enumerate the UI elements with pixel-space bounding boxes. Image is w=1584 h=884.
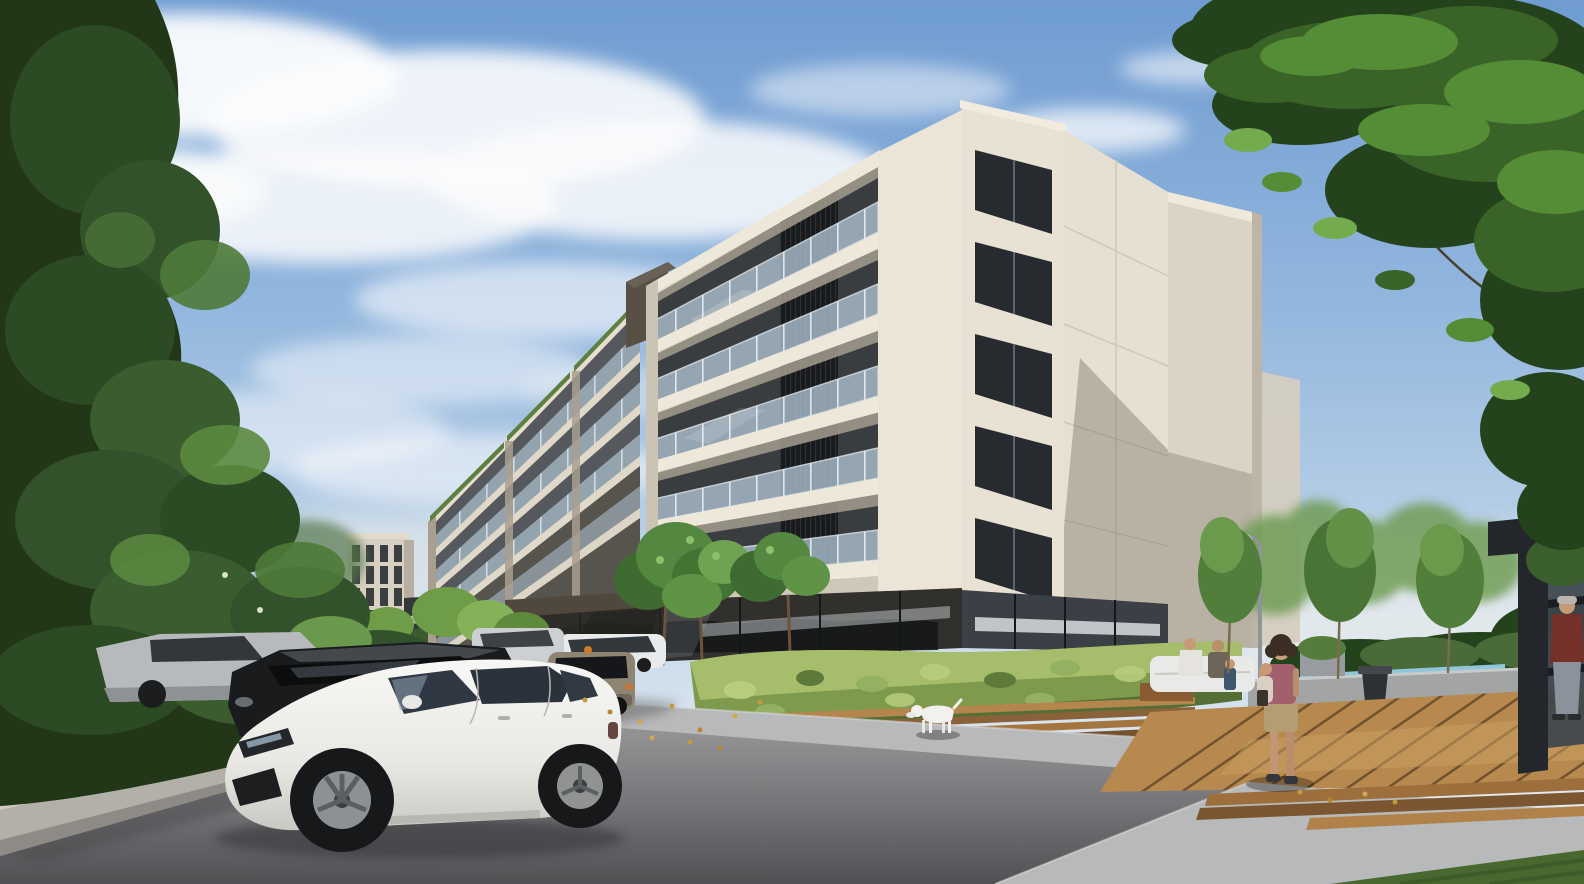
- woman-hair-curl: [1283, 643, 1297, 657]
- sedan-glass: [150, 636, 264, 662]
- hedge-flower: [222, 572, 228, 578]
- man-shoe: [1568, 714, 1581, 720]
- leaf-cluster-light: [1260, 36, 1364, 76]
- woman-shorts: [1264, 700, 1298, 732]
- side-mirror: [402, 695, 422, 709]
- hedge-flower: [257, 607, 263, 613]
- rear-taillight: [608, 722, 618, 739]
- leaf-speck: [1224, 128, 1272, 152]
- tree-canopy: [1326, 508, 1374, 568]
- child-body: [1224, 668, 1236, 690]
- crossbody-bag: [1257, 690, 1268, 706]
- far-car-wheel: [637, 658, 651, 672]
- man-shoe: [1552, 714, 1565, 720]
- leaf-speck: [1262, 172, 1302, 192]
- dog-leg: [942, 721, 945, 733]
- leaf-speck: [1490, 380, 1530, 400]
- leaf: [698, 728, 703, 733]
- hedge-speck: [920, 664, 950, 680]
- leaf-speck: [766, 546, 774, 554]
- leaf-highlight: [180, 425, 270, 485]
- man-cap: [1557, 596, 1577, 604]
- hedge-speck: [984, 672, 1016, 688]
- hedge-speck: [856, 676, 888, 692]
- man-jeans: [1553, 662, 1581, 714]
- leaf-speck: [1375, 270, 1415, 290]
- leaf-speck: [1446, 318, 1494, 342]
- tree-trunk: [788, 596, 790, 652]
- leaf-highlight: [110, 534, 190, 586]
- man-shirt: [1550, 614, 1584, 664]
- leaf-highlight: [85, 212, 155, 268]
- hedge-speck: [1114, 666, 1146, 682]
- child-head: [1225, 659, 1235, 669]
- hedge-speck: [724, 681, 756, 699]
- tree-canopy: [1420, 524, 1464, 576]
- leaf: [608, 710, 613, 715]
- leaf-speck: [712, 552, 720, 560]
- leaf: [638, 720, 643, 725]
- leaf: [718, 746, 723, 751]
- dog-leg: [929, 721, 932, 733]
- corner-pier: [878, 110, 962, 616]
- dog-leg: [922, 720, 925, 733]
- woman-shoe: [1266, 774, 1280, 782]
- tree-canopy: [1200, 517, 1244, 573]
- door-handle: [562, 714, 572, 718]
- leaf-highlight: [160, 240, 250, 310]
- woman-shoe: [1284, 776, 1298, 784]
- leaf: [670, 704, 675, 709]
- leaf: [650, 736, 655, 741]
- dog-leg: [948, 720, 951, 733]
- roof-beacon: [584, 646, 592, 654]
- leaf: [1298, 790, 1303, 795]
- leaf: [1328, 798, 1333, 803]
- seated-person-head: [1212, 640, 1224, 652]
- leaf-highlight: [255, 542, 345, 598]
- dog-snout: [906, 712, 916, 718]
- leaf-speck: [686, 536, 694, 544]
- woman-hair-curl: [1265, 644, 1279, 658]
- hedge-speck: [1050, 660, 1080, 676]
- leaf-cluster-light: [1358, 104, 1490, 156]
- seated-person-body: [1178, 650, 1204, 676]
- leaf-speck: [656, 556, 664, 564]
- black-suv-headlight: [235, 697, 253, 707]
- trash-bin-lid: [1358, 666, 1392, 674]
- seated-person-head: [1184, 638, 1196, 650]
- woman-leg: [1286, 728, 1294, 778]
- leaf: [688, 740, 693, 745]
- child-head: [1260, 663, 1272, 675]
- leaf: [1363, 792, 1368, 797]
- leaf: [733, 714, 738, 719]
- hedge-speck: [885, 693, 915, 707]
- leaf: [583, 698, 588, 703]
- leaf-speck: [1313, 217, 1357, 239]
- sedan-wheel: [138, 680, 166, 708]
- woman-leg: [1270, 728, 1278, 776]
- crossover-taillight: [625, 684, 633, 690]
- leaf: [1393, 800, 1398, 805]
- leaf: [758, 700, 763, 705]
- architectural-render-image: [0, 0, 1584, 884]
- tree-canopy: [782, 556, 830, 596]
- door-handle: [498, 716, 510, 720]
- hedge-speck: [796, 670, 824, 686]
- woman-arm: [1293, 668, 1299, 697]
